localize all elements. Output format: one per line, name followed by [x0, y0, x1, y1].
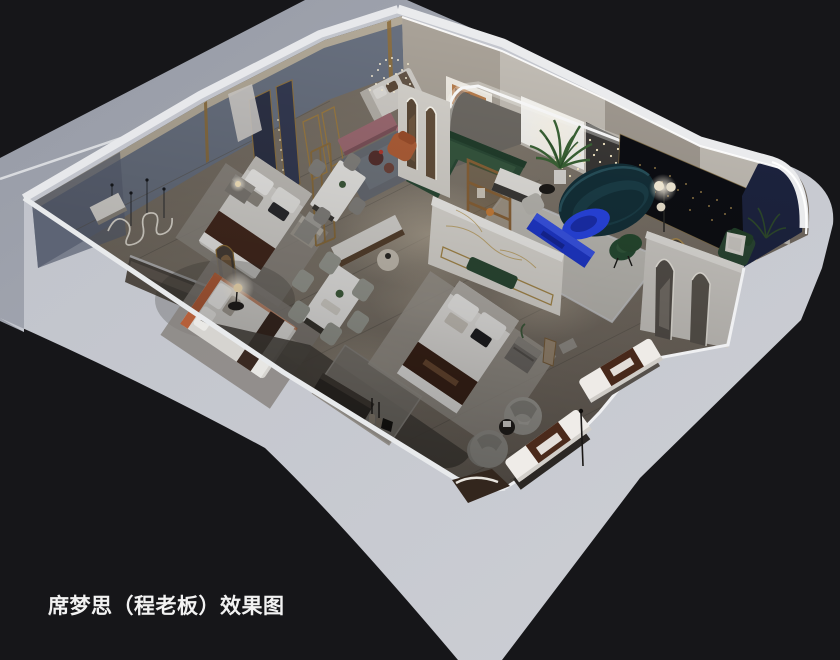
svg-text:席梦思（程老板）效果图: 席梦思（程老板）效果图: [48, 594, 285, 618]
